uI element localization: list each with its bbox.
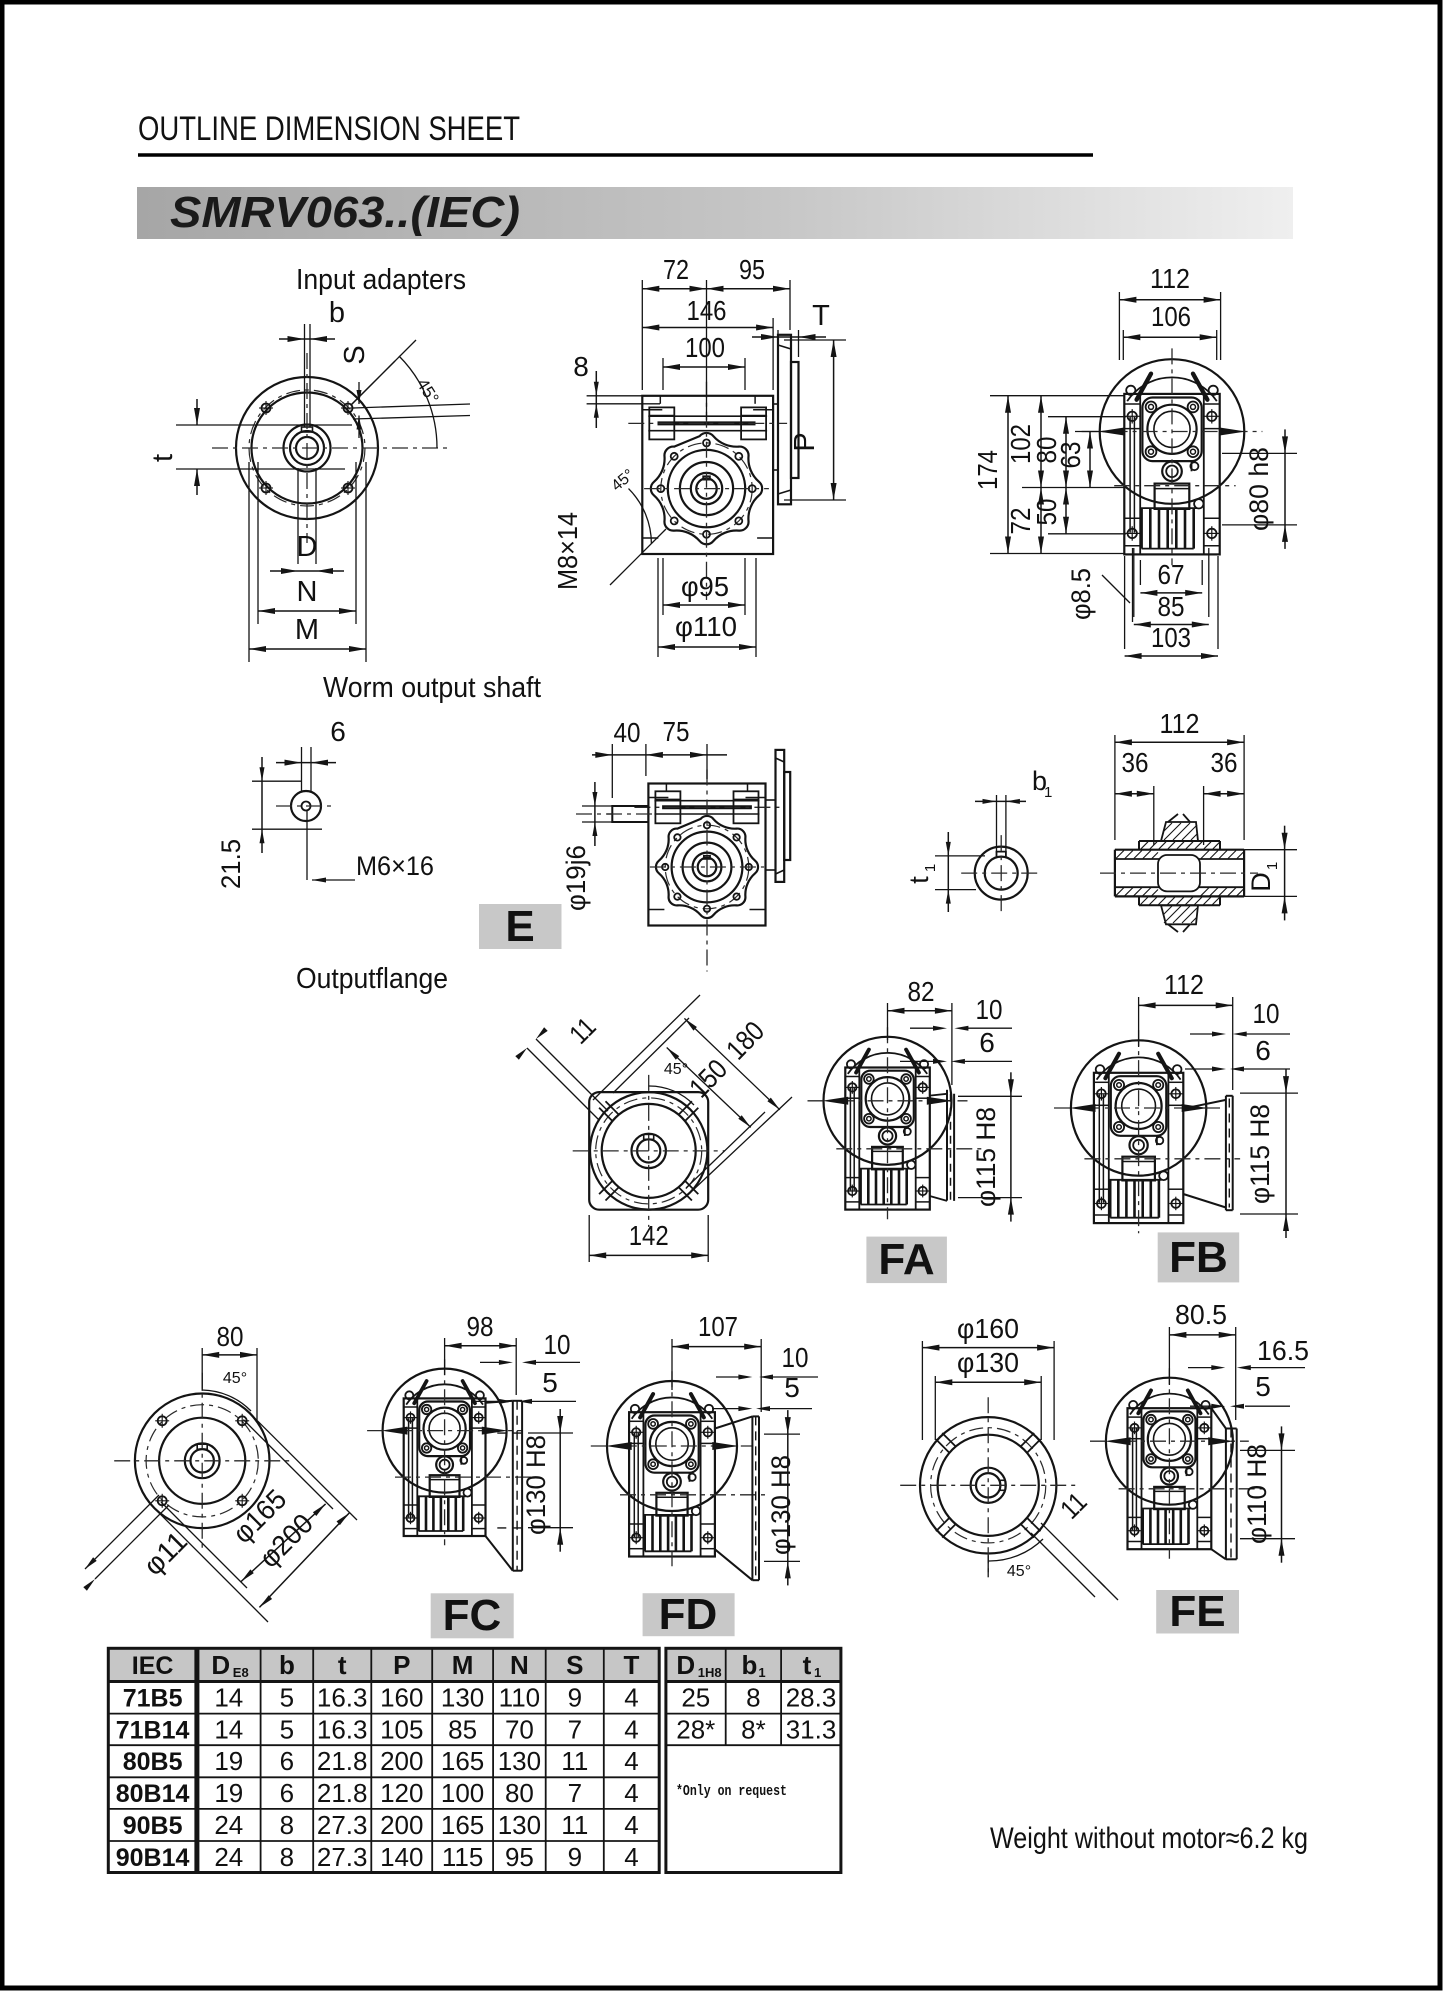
svg-text:21.8: 21.8	[317, 1746, 368, 1776]
svg-text:112: 112	[1150, 263, 1190, 294]
svg-text:t: t	[338, 1650, 347, 1680]
svg-text:M: M	[295, 614, 319, 646]
svg-text:105: 105	[380, 1714, 423, 1744]
svg-text:115: 115	[442, 1842, 483, 1872]
svg-text:8*: 8*	[741, 1714, 766, 1744]
svg-text:82: 82	[908, 976, 935, 1007]
svg-text:OUTLINE DIMENSION SHEET: OUTLINE DIMENSION SHEET	[138, 110, 520, 148]
svg-text:63: 63	[1055, 442, 1086, 469]
svg-text:72: 72	[663, 254, 689, 285]
svg-text:8: 8	[746, 1683, 760, 1713]
svg-text:50: 50	[1031, 499, 1062, 526]
svg-text:10: 10	[976, 994, 1003, 1025]
svg-text:φ130: φ130	[957, 1347, 1019, 1378]
svg-text:N: N	[510, 1650, 529, 1680]
svg-text:80B5: 80B5	[123, 1748, 183, 1776]
svg-text:25: 25	[681, 1683, 710, 1713]
svg-text:4: 4	[624, 1714, 638, 1744]
svg-text:φ80 h8: φ80 h8	[1244, 447, 1274, 531]
svg-text:146: 146	[687, 295, 727, 326]
svg-text:98: 98	[467, 1311, 494, 1342]
svg-text:4: 4	[624, 1778, 638, 1808]
svg-text:16.3: 16.3	[317, 1714, 368, 1744]
svg-text:85: 85	[448, 1714, 477, 1744]
svg-text:10: 10	[1253, 998, 1280, 1029]
svg-text:6: 6	[280, 1778, 294, 1808]
svg-text:6: 6	[979, 1027, 995, 1058]
svg-text:8: 8	[573, 351, 589, 382]
svg-text:112: 112	[1160, 708, 1200, 739]
svg-text:Outputflange: Outputflange	[296, 963, 448, 995]
svg-text:90B14: 90B14	[116, 1844, 190, 1872]
svg-text:11: 11	[561, 1746, 588, 1776]
svg-text:b: b	[279, 1650, 295, 1680]
svg-text:31.3: 31.3	[786, 1714, 837, 1744]
svg-text:200: 200	[380, 1746, 423, 1776]
svg-text:T: T	[624, 1650, 640, 1680]
svg-text:16.5: 16.5	[1257, 1335, 1309, 1366]
svg-text:100: 100	[441, 1778, 484, 1808]
svg-text:M: M	[452, 1650, 474, 1680]
svg-text:95: 95	[505, 1842, 534, 1872]
svg-text:E8: E8	[233, 1665, 249, 1680]
svg-text:5: 5	[542, 1367, 558, 1398]
svg-text:130: 130	[498, 1746, 541, 1776]
svg-text:1: 1	[814, 1665, 821, 1680]
svg-text:1: 1	[1044, 784, 1052, 801]
svg-text:FC: FC	[443, 1591, 502, 1640]
svg-text:9: 9	[568, 1683, 582, 1713]
svg-text:b: b	[329, 297, 345, 329]
svg-text:5: 5	[280, 1714, 294, 1744]
svg-text:SMRV063..(IEC): SMRV063..(IEC)	[170, 188, 520, 237]
svg-text:95: 95	[739, 254, 765, 285]
svg-text:21.5: 21.5	[216, 839, 246, 889]
svg-text:36: 36	[1122, 747, 1149, 778]
svg-text:Weight without motor≈6.2 kg: Weight without motor≈6.2 kg	[990, 1822, 1308, 1855]
svg-text:φ115 H8: φ115 H8	[971, 1107, 1001, 1207]
svg-text:174: 174	[972, 450, 1003, 490]
svg-text:M6×16: M6×16	[356, 851, 434, 881]
svg-text:80: 80	[505, 1778, 534, 1808]
svg-text:165: 165	[441, 1810, 484, 1840]
svg-text:5: 5	[280, 1683, 294, 1713]
svg-text:7: 7	[568, 1778, 582, 1808]
svg-text:90B5: 90B5	[123, 1812, 183, 1840]
svg-text:142: 142	[629, 1220, 669, 1251]
svg-text:200: 200	[380, 1810, 423, 1840]
svg-text:φ130 H8: φ130 H8	[521, 1435, 551, 1535]
svg-text:28.3: 28.3	[786, 1683, 837, 1713]
svg-text:71B5: 71B5	[123, 1685, 183, 1713]
svg-text:16.3: 16.3	[317, 1683, 368, 1713]
svg-text:40: 40	[614, 717, 641, 748]
svg-text:120: 120	[380, 1778, 423, 1808]
svg-text:21.8: 21.8	[317, 1778, 368, 1808]
svg-text:45°: 45°	[1007, 1563, 1031, 1580]
svg-text:FD: FD	[659, 1590, 718, 1639]
svg-text:1: 1	[758, 1665, 765, 1680]
svg-text:27.3: 27.3	[317, 1842, 368, 1872]
svg-text:P: P	[393, 1650, 410, 1680]
svg-text:φ110: φ110	[675, 611, 737, 642]
svg-text:N: N	[297, 576, 318, 608]
svg-text:7: 7	[568, 1714, 582, 1744]
svg-text:D: D	[297, 531, 318, 563]
svg-text:80.5: 80.5	[1175, 1299, 1227, 1330]
svg-text:14: 14	[214, 1683, 243, 1713]
svg-text:FB: FB	[1169, 1233, 1228, 1282]
svg-text:φ95: φ95	[681, 571, 729, 602]
svg-text:φ8.5: φ8.5	[1066, 568, 1096, 620]
svg-text:Input adapters: Input adapters	[296, 264, 466, 296]
svg-text:4: 4	[624, 1842, 638, 1872]
svg-text:165: 165	[441, 1746, 484, 1776]
svg-text:8: 8	[280, 1842, 294, 1872]
svg-text:110: 110	[499, 1683, 540, 1713]
svg-text:D: D	[1246, 872, 1276, 892]
svg-text:Worm output shaft: Worm output shaft	[323, 672, 541, 704]
svg-text:4: 4	[624, 1746, 638, 1776]
svg-text:t: t	[803, 1650, 812, 1680]
svg-text:φ160: φ160	[957, 1313, 1019, 1344]
svg-text:10: 10	[782, 1342, 809, 1373]
svg-text:IEC: IEC	[132, 1652, 174, 1680]
svg-text:D: D	[211, 1650, 230, 1680]
svg-text:1: 1	[922, 864, 939, 872]
svg-text:45°: 45°	[223, 1370, 247, 1387]
svg-text:1: 1	[1264, 862, 1281, 870]
svg-text:14: 14	[214, 1714, 243, 1744]
svg-text:24: 24	[214, 1842, 243, 1872]
svg-text:t: t	[147, 454, 179, 462]
svg-text:24: 24	[214, 1810, 243, 1840]
svg-text:4: 4	[624, 1683, 638, 1713]
svg-text:107: 107	[698, 1311, 738, 1342]
svg-text:19: 19	[214, 1746, 243, 1776]
svg-text:11: 11	[561, 1810, 588, 1840]
svg-text:85: 85	[1158, 591, 1185, 622]
svg-text:10: 10	[544, 1329, 571, 1360]
svg-text:t: t	[904, 876, 934, 884]
svg-text:S: S	[566, 1650, 583, 1680]
svg-text:106: 106	[1151, 301, 1191, 332]
svg-text:75: 75	[663, 716, 690, 747]
svg-text:D: D	[676, 1650, 695, 1680]
svg-text:E: E	[505, 902, 534, 951]
svg-text:8: 8	[280, 1810, 294, 1840]
svg-text:P: P	[789, 432, 821, 451]
svg-text:4: 4	[624, 1810, 638, 1840]
svg-text:28*: 28*	[676, 1714, 715, 1744]
svg-text:160: 160	[380, 1683, 423, 1713]
svg-text:1H8: 1H8	[698, 1665, 722, 1680]
svg-text:9: 9	[568, 1842, 582, 1872]
svg-text:6: 6	[330, 716, 346, 747]
svg-text:φ110 H8: φ110 H8	[1242, 1444, 1272, 1544]
svg-text:45°: 45°	[664, 1061, 688, 1078]
svg-text:112: 112	[1164, 969, 1204, 1000]
svg-text:130: 130	[498, 1810, 541, 1840]
svg-text:M8×14: M8×14	[552, 512, 583, 590]
svg-text:φ115 H8: φ115 H8	[1245, 1104, 1275, 1204]
svg-text:80B14: 80B14	[116, 1780, 190, 1808]
svg-text:67: 67	[1158, 559, 1185, 590]
svg-text:S: S	[339, 345, 371, 364]
svg-text:80: 80	[217, 1321, 244, 1352]
svg-text:T: T	[812, 300, 830, 332]
svg-text:27.3: 27.3	[317, 1810, 368, 1840]
svg-text:6: 6	[1255, 1035, 1271, 1066]
svg-text:130: 130	[441, 1683, 484, 1713]
svg-text:b: b	[741, 1650, 757, 1680]
svg-text:19: 19	[214, 1778, 243, 1808]
svg-text:5: 5	[1255, 1371, 1271, 1402]
svg-text:140: 140	[380, 1842, 423, 1872]
svg-text:6: 6	[280, 1746, 294, 1776]
svg-text:FA: FA	[878, 1235, 934, 1284]
svg-text:103: 103	[1151, 622, 1191, 653]
svg-text:36: 36	[1211, 747, 1238, 778]
svg-text:71B14: 71B14	[116, 1716, 190, 1744]
svg-text:*Only on request: *Only on request	[676, 1783, 787, 1800]
svg-text:φ130 H8: φ130 H8	[766, 1455, 796, 1555]
svg-text:5: 5	[784, 1372, 800, 1403]
svg-text:100: 100	[685, 332, 725, 363]
svg-text:FE: FE	[1169, 1587, 1225, 1636]
svg-text:φ19j6: φ19j6	[561, 845, 591, 911]
svg-text:70: 70	[505, 1714, 534, 1744]
